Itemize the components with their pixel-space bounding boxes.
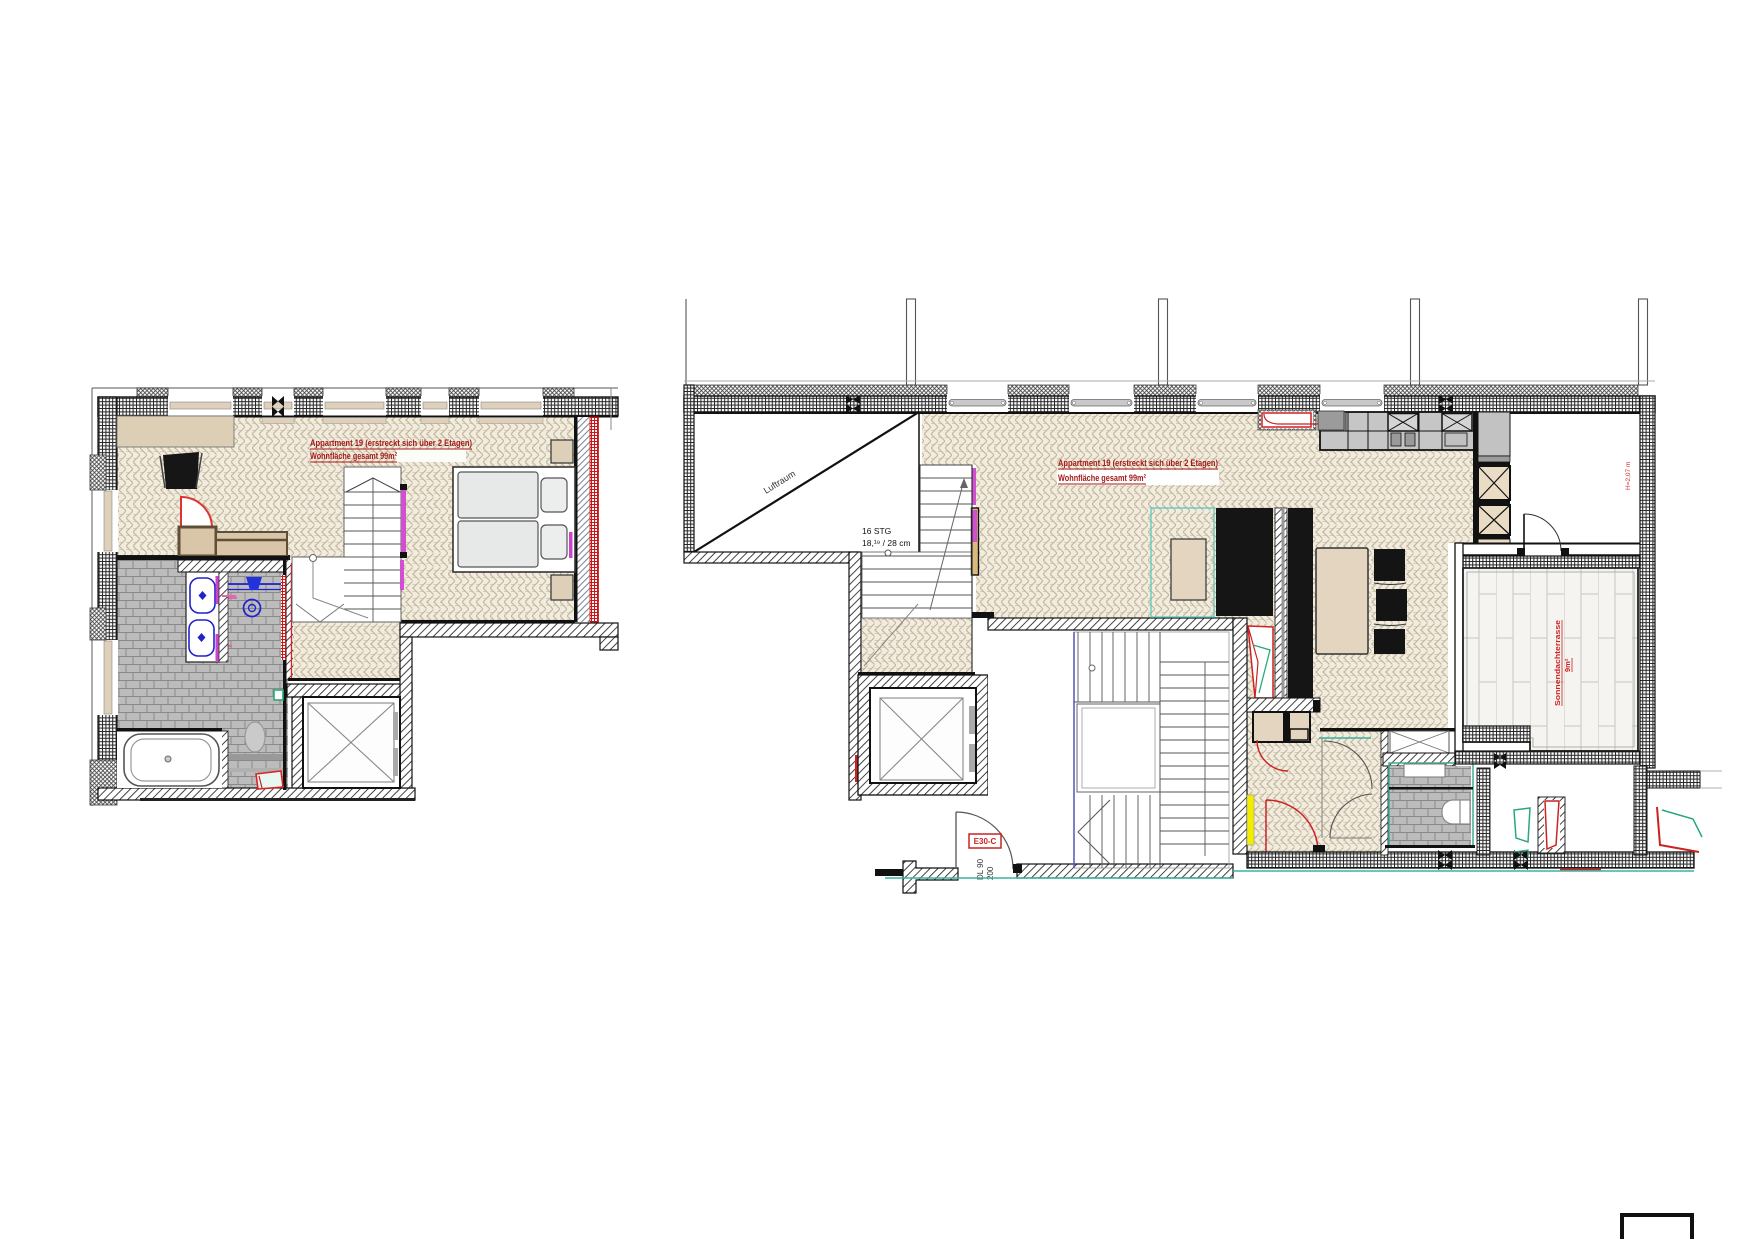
svg-text:Appartment 19 (erstreckt sich: Appartment 19 (erstreckt sich über 2 Eta… <box>1058 458 1218 469</box>
svg-text:16 STG: 16 STG <box>862 526 891 536</box>
svg-text:H=2,07 m: H=2,07 m <box>1625 462 1632 490</box>
svg-text:Wohnfläche gesamt 99m²: Wohnfläche gesamt 99m² <box>310 451 397 462</box>
svg-text:DL 90: DL 90 <box>976 858 985 880</box>
svg-text:E30-C: E30-C <box>974 837 997 846</box>
svg-text:Appartment 19 (erstreckt sich: Appartment 19 (erstreckt sich über 2 Eta… <box>310 438 472 449</box>
svg-text:18,¹⁹ / 28 cm: 18,¹⁹ / 28 cm <box>862 538 911 548</box>
svg-text:9m²: 9m² <box>1563 658 1572 672</box>
svg-text:Wohnfläche gesamt 99m²: Wohnfläche gesamt 99m² <box>1058 473 1146 484</box>
svg-text:Sonnendachterrasse: Sonnendachterrasse <box>1553 620 1562 706</box>
